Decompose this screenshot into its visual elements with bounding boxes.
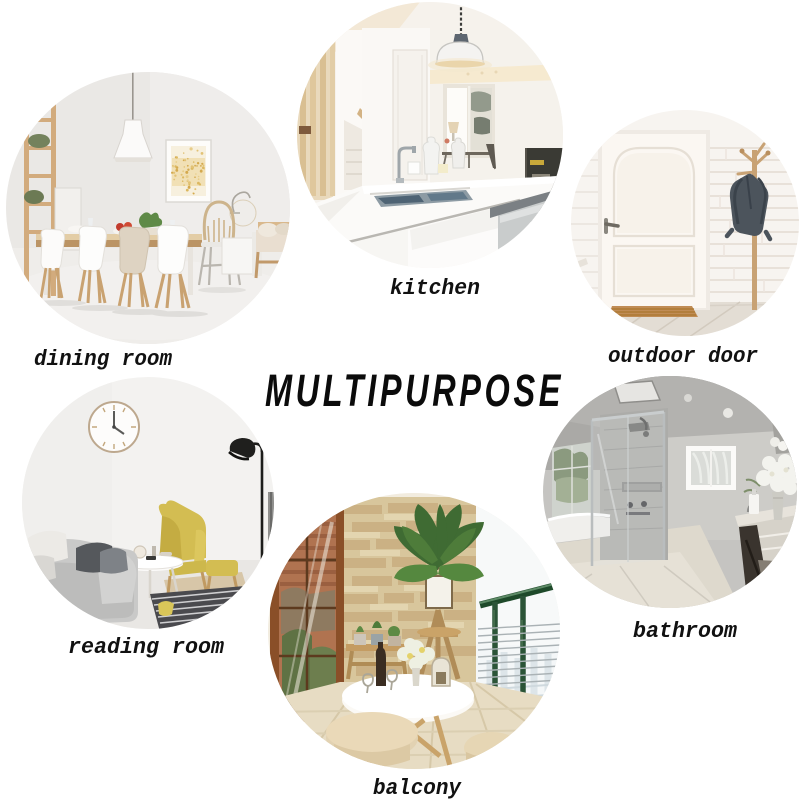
svg-text:balcony: balcony (373, 776, 462, 800)
svg-text:MULTIPURPOSE: MULTIPURPOSE (265, 365, 564, 416)
svg-text:reading room: reading room (68, 635, 225, 660)
svg-text:outdoor door: outdoor door (608, 344, 758, 369)
svg-text:bathroom: bathroom (633, 619, 738, 644)
svg-text:dining room: dining room (34, 347, 173, 372)
svg-text:kitchen: kitchen (390, 276, 480, 301)
